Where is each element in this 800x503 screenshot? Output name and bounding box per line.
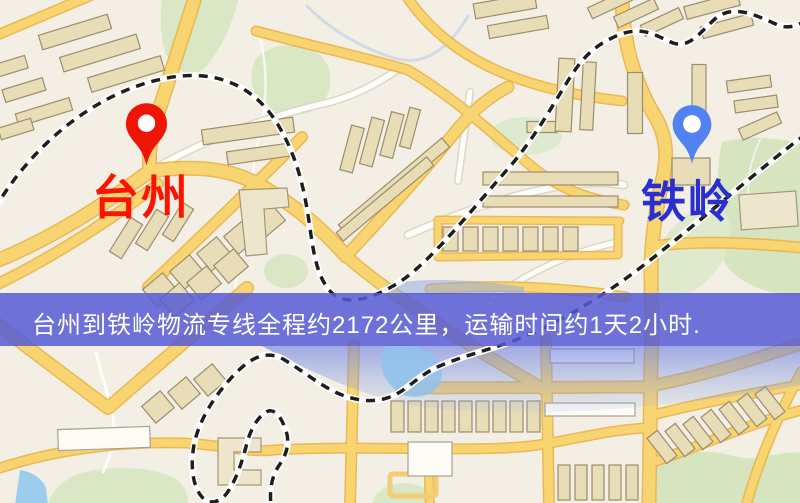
map-canvas: 台州 铁岭 台州到铁岭物流专线全程约2172公里，运输时间约1天2小时. (0, 0, 800, 503)
map-artwork (0, 0, 800, 503)
destination-city-label: 铁岭 (632, 180, 744, 225)
origin-city-label: 台州 (86, 176, 196, 223)
route-info-banner: 台州到铁岭物流专线全程约2172公里，运输时间约1天2小时. (0, 293, 800, 346)
destination-pin-icon (673, 105, 712, 164)
route-info-text: 台州到铁岭物流专线全程约2172公里，运输时间约1天2小时. (32, 305, 701, 340)
origin-pin-icon (126, 103, 167, 165)
destination-pin (668, 104, 716, 166)
origin-pin (123, 102, 170, 168)
